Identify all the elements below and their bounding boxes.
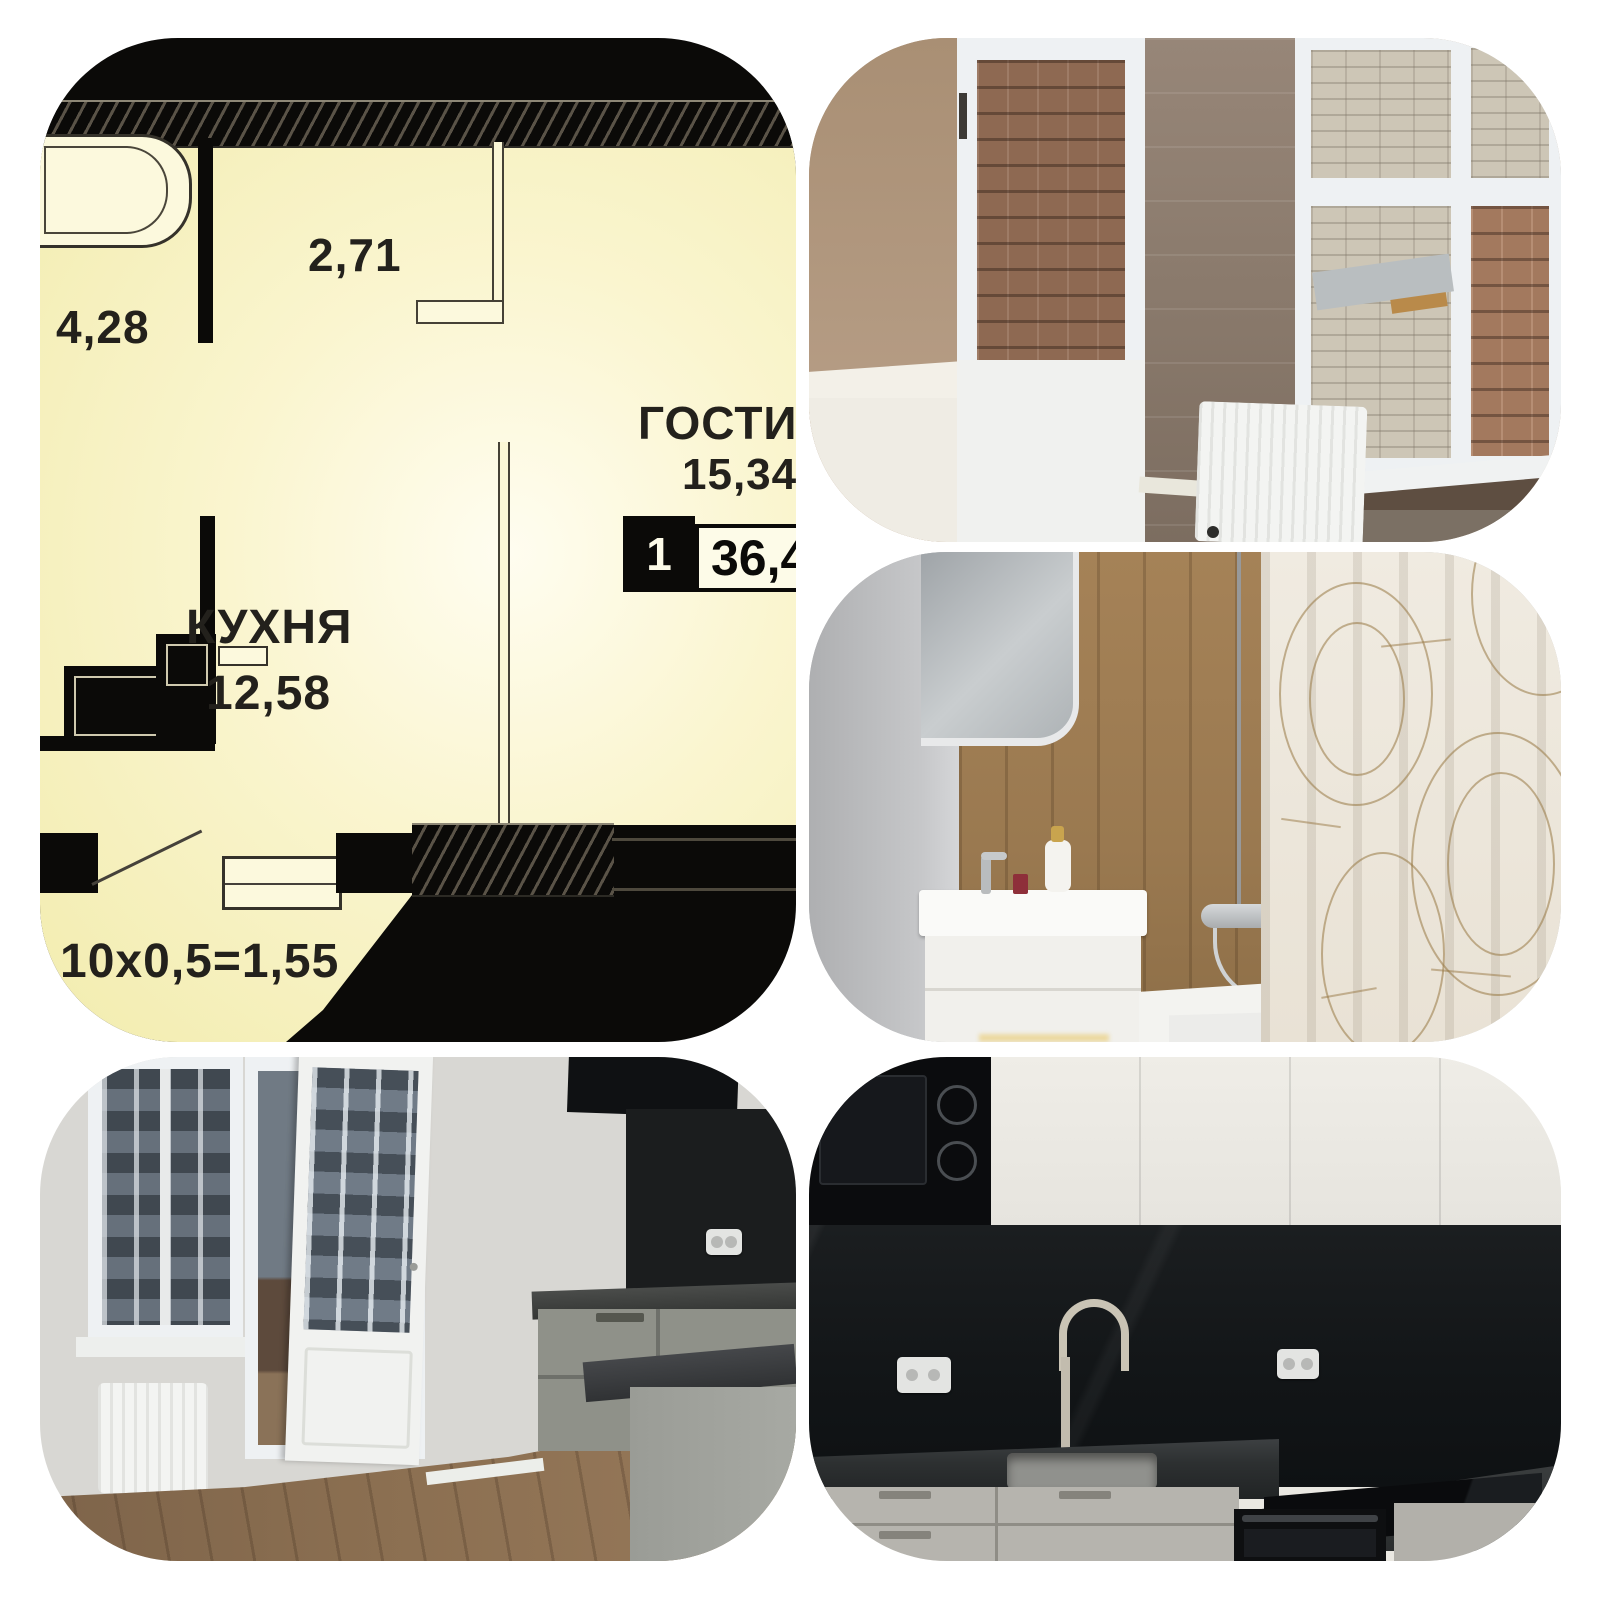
soap-dispenser: [1045, 840, 1071, 892]
handle-notch: [1059, 1491, 1111, 1499]
handle-notch: [879, 1531, 931, 1539]
curtain-pattern-dash: [1281, 818, 1341, 828]
left-glazed-door-glass: [977, 60, 1125, 360]
vanity-cabinet: [925, 936, 1141, 1042]
balcony-photo[interactable]: [809, 38, 1561, 542]
window-symbol-bottom: [222, 856, 342, 910]
curtain-pattern-arc: [1447, 772, 1555, 956]
glazing-partition-upper: [492, 142, 504, 322]
balcony-door-leaf: [285, 1057, 433, 1465]
built-in-microwave: [809, 1057, 991, 1227]
socket-hole: [1283, 1358, 1295, 1370]
oven-glass: [1244, 1529, 1376, 1557]
radiator: [98, 1383, 208, 1493]
built-in-oven: [1234, 1509, 1386, 1561]
room-area-living: 15,34: [682, 450, 796, 500]
radiator: [1195, 401, 1368, 542]
microwave-window: [819, 1075, 927, 1185]
glazing-partition-upper-foot: [416, 300, 504, 324]
door-glass-pane: [303, 1067, 418, 1333]
bathroom-photo[interactable]: [809, 552, 1561, 1042]
door-handle: [410, 1263, 418, 1271]
red-cosmetic-item: [1013, 874, 1028, 894]
window-symbol-midline: [225, 883, 339, 885]
curtain-pattern-arc: [1321, 852, 1445, 1042]
wall-bottom-hatched: [412, 823, 614, 897]
socket-hole: [906, 1369, 918, 1381]
socket-hole: [711, 1236, 723, 1248]
window-mullion: [160, 1069, 170, 1325]
socket-hole: [1301, 1358, 1313, 1370]
handle-notch: [596, 1313, 644, 1322]
drawer-gap: [809, 1523, 1239, 1526]
sink-faucet-spout: [981, 852, 1007, 860]
lower-cabinet-right: [1394, 1503, 1561, 1561]
wall-bottom-mid: [336, 833, 414, 893]
wall-bathroom-right: [198, 138, 213, 343]
socket-hole: [928, 1369, 940, 1381]
microwave-dial: [937, 1141, 977, 1181]
cabinet-seam: [1139, 1057, 1141, 1229]
door-hinge: [959, 93, 967, 139]
shower-pipe: [1237, 552, 1241, 908]
mirror-cabinet: [921, 552, 1079, 746]
handle-notch: [879, 1491, 931, 1499]
radiator-valve: [1207, 526, 1219, 538]
dimension-top: 2,71: [308, 228, 402, 282]
dimension-left: 4,28: [56, 300, 150, 354]
badge-rooms-count: 1: [623, 516, 695, 592]
window-sill: [76, 1337, 256, 1357]
sink-basin: [1007, 1453, 1157, 1489]
left-door-bottom-panel: [957, 360, 1145, 542]
wall-bottom-line-2: [612, 888, 796, 891]
wall-bottom-line-1: [612, 838, 796, 841]
faucet-stem: [1061, 1357, 1070, 1449]
bay-window-right-pane-top: [1471, 48, 1549, 178]
curtain-pattern-arc: [1471, 552, 1561, 696]
room-label-living: ГОСТИНАЯ: [638, 396, 796, 450]
room-area-kitchen: 12,58: [206, 666, 331, 721]
badge-total-area: 36,4: [695, 524, 796, 592]
lower-cabinets: [809, 1487, 1239, 1561]
collage-page: { "page": { "type": "apartment-listing-p…: [0, 0, 1600, 1600]
black-backsplash: [626, 1109, 796, 1297]
vanity-sink-top: [919, 890, 1147, 936]
soap-dispenser-pump: [1051, 826, 1064, 842]
wall-bottom-left: [40, 833, 98, 893]
kitchen-balcony-door-photo[interactable]: [40, 1057, 796, 1561]
wall-socket: [1277, 1349, 1319, 1379]
wall-socket: [897, 1357, 951, 1393]
door-bottom-panel-inset: [301, 1347, 412, 1449]
glazing-partition-lower: [498, 442, 510, 826]
microwave-dial: [937, 1085, 977, 1125]
photo-collage: 2,71 4,28 ГОСТИНАЯ 15,34 КУХНЯ 12,58 3,1…: [0, 0, 1600, 1600]
kitchen-dark-stone-photo[interactable]: [809, 1057, 1561, 1561]
dimension-note: 3,10x0,5=1,55: [40, 934, 339, 989]
bay-window-right-pane-bottom: [1471, 206, 1549, 456]
vanity-underlight: [979, 1034, 1109, 1042]
badge-total-area-value: 36,4: [711, 529, 796, 587]
bay-window-top-pane: [1311, 50, 1451, 178]
socket-hole: [725, 1236, 737, 1248]
shower-curtain: [1261, 552, 1561, 1042]
cabinet-seam: [1289, 1057, 1291, 1229]
vanity-drawer-gap: [925, 988, 1141, 991]
cabinet-seam: [1439, 1057, 1441, 1229]
sink-faucet: [981, 856, 991, 894]
wall-socket: [706, 1229, 742, 1255]
oven-handle: [1242, 1515, 1378, 1522]
room-label-kitchen: КУХНЯ: [186, 600, 353, 655]
cabinet-seam: [995, 1487, 998, 1561]
bathtub-inner-outline: [44, 146, 168, 234]
floorplan-image[interactable]: 2,71 4,28 ГОСТИНАЯ 15,34 КУХНЯ 12,58 3,1…: [40, 38, 796, 1042]
peninsula-side-panel: [630, 1387, 796, 1561]
badge-rooms-value: 1: [646, 527, 672, 581]
